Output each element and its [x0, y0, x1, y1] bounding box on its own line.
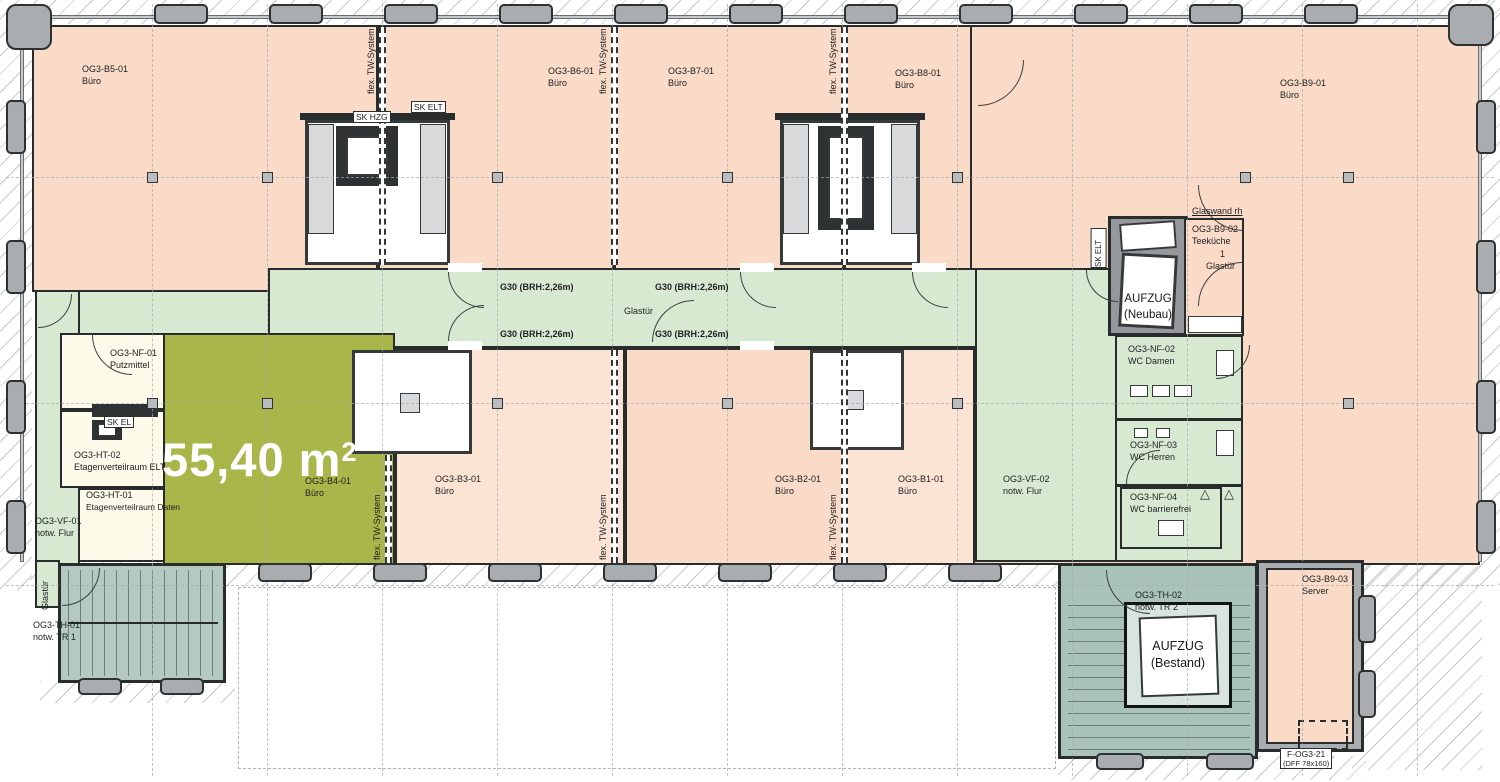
wc-wall-1 — [1115, 418, 1243, 421]
elevator-neubau-machine — [1119, 220, 1177, 252]
tw-partition — [611, 350, 618, 563]
facade-corner-tr — [1448, 4, 1494, 46]
wc-sink-2 — [1152, 385, 1170, 397]
glastuer-right-label: Glastür — [1206, 261, 1235, 273]
column — [492, 398, 503, 409]
g30-label-2: G30 (BRH:2,26m) — [655, 282, 729, 294]
column — [722, 172, 733, 183]
room-label-og3-vf-02: OG3-VF-02notw. Flur — [1003, 474, 1050, 497]
hatch-below-left-stair — [40, 681, 235, 703]
facade-pilaster — [833, 563, 887, 582]
facade-pilaster — [959, 4, 1013, 24]
room-label-og3-ht-01: OG3-HT-01Etagenverteilraum Daten — [86, 490, 180, 513]
flex-tw-label: flex. TW-System — [828, 482, 840, 560]
facade-pilaster — [1476, 500, 1496, 554]
facade-corner-tl — [6, 4, 52, 50]
column — [1343, 172, 1354, 183]
sk-elt-label-right: SK ELT — [1091, 228, 1107, 268]
kitchen1-right-counter — [420, 124, 446, 234]
grid-line — [1417, 4, 1418, 776]
tw-partition — [841, 27, 848, 265]
room-label-og3-nf-02: OG3-NF-02WC Damen — [1128, 344, 1175, 367]
facade-pilaster — [488, 563, 542, 582]
facade-pilaster — [6, 500, 26, 554]
glastuer-stair-label: Glastür — [40, 566, 52, 610]
flex-tw-label: flex. TW-System — [598, 16, 610, 94]
facade-pilaster — [1476, 100, 1496, 154]
room-label-og3-b1-01: OG3-B1-01Büro — [898, 474, 944, 497]
grid-line — [6, 585, 1494, 586]
facade-pilaster — [948, 563, 1002, 582]
kitchen2-right-counter — [891, 124, 917, 234]
wc-urinal-2 — [1156, 428, 1170, 438]
facade-pilaster — [384, 4, 438, 24]
room-label-og3-ht-02: OG3-HT-02Etagenverteilraum ELT — [74, 450, 165, 473]
tw-partition — [611, 27, 618, 265]
facade-pilaster — [844, 4, 898, 24]
grid-line — [152, 4, 153, 776]
column — [262, 172, 273, 183]
wc-sink-3 — [1174, 385, 1192, 397]
facade-pilaster — [1074, 4, 1128, 24]
facade-pilaster — [269, 4, 323, 24]
room-label-og3-nf-01: OG3-NF-01Putzmittel — [110, 348, 157, 371]
stair-landing-line-tr1 — [68, 622, 218, 624]
column — [1343, 398, 1354, 409]
column — [492, 172, 503, 183]
door-gap — [448, 263, 482, 272]
facade-pilaster — [1358, 670, 1376, 718]
kitchen1-left-counter — [308, 124, 334, 234]
room-label-og3-nf-04: OG3-NF-04WC barrierefrei — [1130, 492, 1191, 515]
room-label-og3-b9-01: OG3-B9-01Büro — [1280, 78, 1326, 101]
room-og3-vf-02[interactable] — [975, 268, 1118, 562]
door-gap — [740, 341, 774, 350]
warning-triangle-1: △ — [1200, 486, 1210, 502]
room-label-og3-b9-02: OG3-B9-02Teeküche — [1192, 224, 1238, 247]
column — [147, 172, 158, 183]
room-label-og3-b3-01: OG3-B3-01Büro — [435, 474, 481, 497]
grid-line — [6, 177, 1494, 178]
grid-line — [1072, 4, 1073, 776]
door-gap — [740, 263, 774, 272]
facade-pilaster — [603, 563, 657, 582]
wc-barrierefrei-fixture — [1158, 520, 1184, 536]
facade-pilaster — [1358, 595, 1376, 643]
room-label-og3-b9-03: OG3-B9-03Server — [1302, 574, 1348, 597]
door-gap — [912, 263, 946, 272]
tw-partition — [841, 350, 848, 563]
facade-pilaster — [258, 563, 312, 582]
sk-el-label: SK EL — [104, 416, 134, 428]
flex-tw-label: flex. TW-System — [372, 482, 384, 560]
facade-pilaster — [6, 100, 26, 154]
kitchen2-cap — [775, 113, 925, 120]
flex-tw-label: flex. TW-System — [828, 16, 840, 94]
flex-tw-label: flex. TW-System — [598, 482, 610, 560]
column — [262, 398, 273, 409]
column — [147, 398, 158, 409]
facade-pilaster — [1096, 753, 1144, 770]
glastuer-corridor-label: Glastür — [624, 306, 653, 318]
room-label-og3-th-02: OG3-TH-02notw. TR 2 — [1135, 590, 1182, 613]
g30-label-4: G30 (BRH:2,26m) — [655, 329, 729, 341]
facade-pilaster — [499, 4, 553, 24]
elevator-bestand-label: AUFZUG(Bestand) — [1124, 638, 1232, 672]
facade-pilaster — [718, 563, 772, 582]
room-label-og3-b2-01: OG3-B2-01Büro — [775, 474, 821, 497]
room-label-og3-th-01: OG3-TH-01notw. TR 1 — [33, 620, 80, 643]
floor-plan: △ △ — [0, 0, 1500, 782]
g30-label-1: G30 (BRH:2,26m) — [500, 282, 574, 294]
tw-partition — [379, 27, 386, 265]
room-label-og3-b8-01: OG3-B8-01Büro — [895, 68, 941, 91]
warning-triangle-2: △ — [1224, 486, 1234, 502]
sk-elt-label-top: SK ELT — [411, 101, 446, 113]
room-label-og3-b6-01: OG3-B6-01Büro — [548, 66, 594, 89]
flex-tw-label: flex. TW-System — [366, 16, 378, 94]
door-gap — [448, 341, 482, 350]
column — [952, 398, 963, 409]
room-label-og3-b5-01: OG3-B5-01Büro — [82, 64, 128, 87]
facade-pilaster — [1304, 4, 1358, 24]
glastuer-count-label: 1 — [1220, 249, 1225, 261]
elevator-neubau-label: AUFZUG(Neubau) — [1110, 292, 1186, 323]
facade-pilaster — [1206, 753, 1254, 770]
room-label-og3-vf-01: OG3-VF-01notw. Flur — [35, 516, 82, 539]
facade-pilaster — [6, 240, 26, 294]
wc-toilet-2 — [1216, 430, 1234, 456]
dff-window — [1298, 720, 1348, 750]
facade-pilaster — [6, 380, 26, 434]
wc-urinal-1 — [1134, 428, 1148, 438]
teekueche-counter — [1188, 316, 1242, 333]
highlight-area-label: 55,40 m2 — [162, 432, 358, 487]
facade-pilaster — [614, 4, 668, 24]
tw-partition — [385, 455, 392, 563]
column — [722, 398, 733, 409]
facade-pilaster — [1189, 4, 1243, 24]
column — [952, 172, 963, 183]
sk-hzg-label: SK HZG — [353, 111, 391, 123]
grid-line — [6, 403, 1494, 404]
site-dashed-rect — [238, 587, 1056, 769]
room-label-og3-b7-01: OG3-B7-01Büro — [668, 66, 714, 89]
wc-sink-1 — [1130, 385, 1148, 397]
column — [1240, 172, 1251, 183]
facade-pilaster — [160, 678, 204, 695]
facade-pilaster — [1476, 240, 1496, 294]
facade-pilaster — [154, 4, 208, 24]
g30-label-3: G30 (BRH:2,26m) — [500, 329, 574, 341]
facade-pilaster — [78, 678, 122, 695]
facade-pilaster — [373, 563, 427, 582]
facade-pilaster — [1476, 380, 1496, 434]
kitchen2-left-counter — [783, 124, 809, 234]
glaswand-label: Glaswand rh — [1192, 206, 1243, 218]
facade-pilaster — [729, 4, 783, 24]
window-tag-f-og3-21: F-OG3-21(DFF 78x160) — [1280, 748, 1332, 769]
grid-line — [1302, 4, 1303, 776]
room-label-og3-nf-03: OG3-NF-03WC Herren — [1130, 440, 1177, 463]
